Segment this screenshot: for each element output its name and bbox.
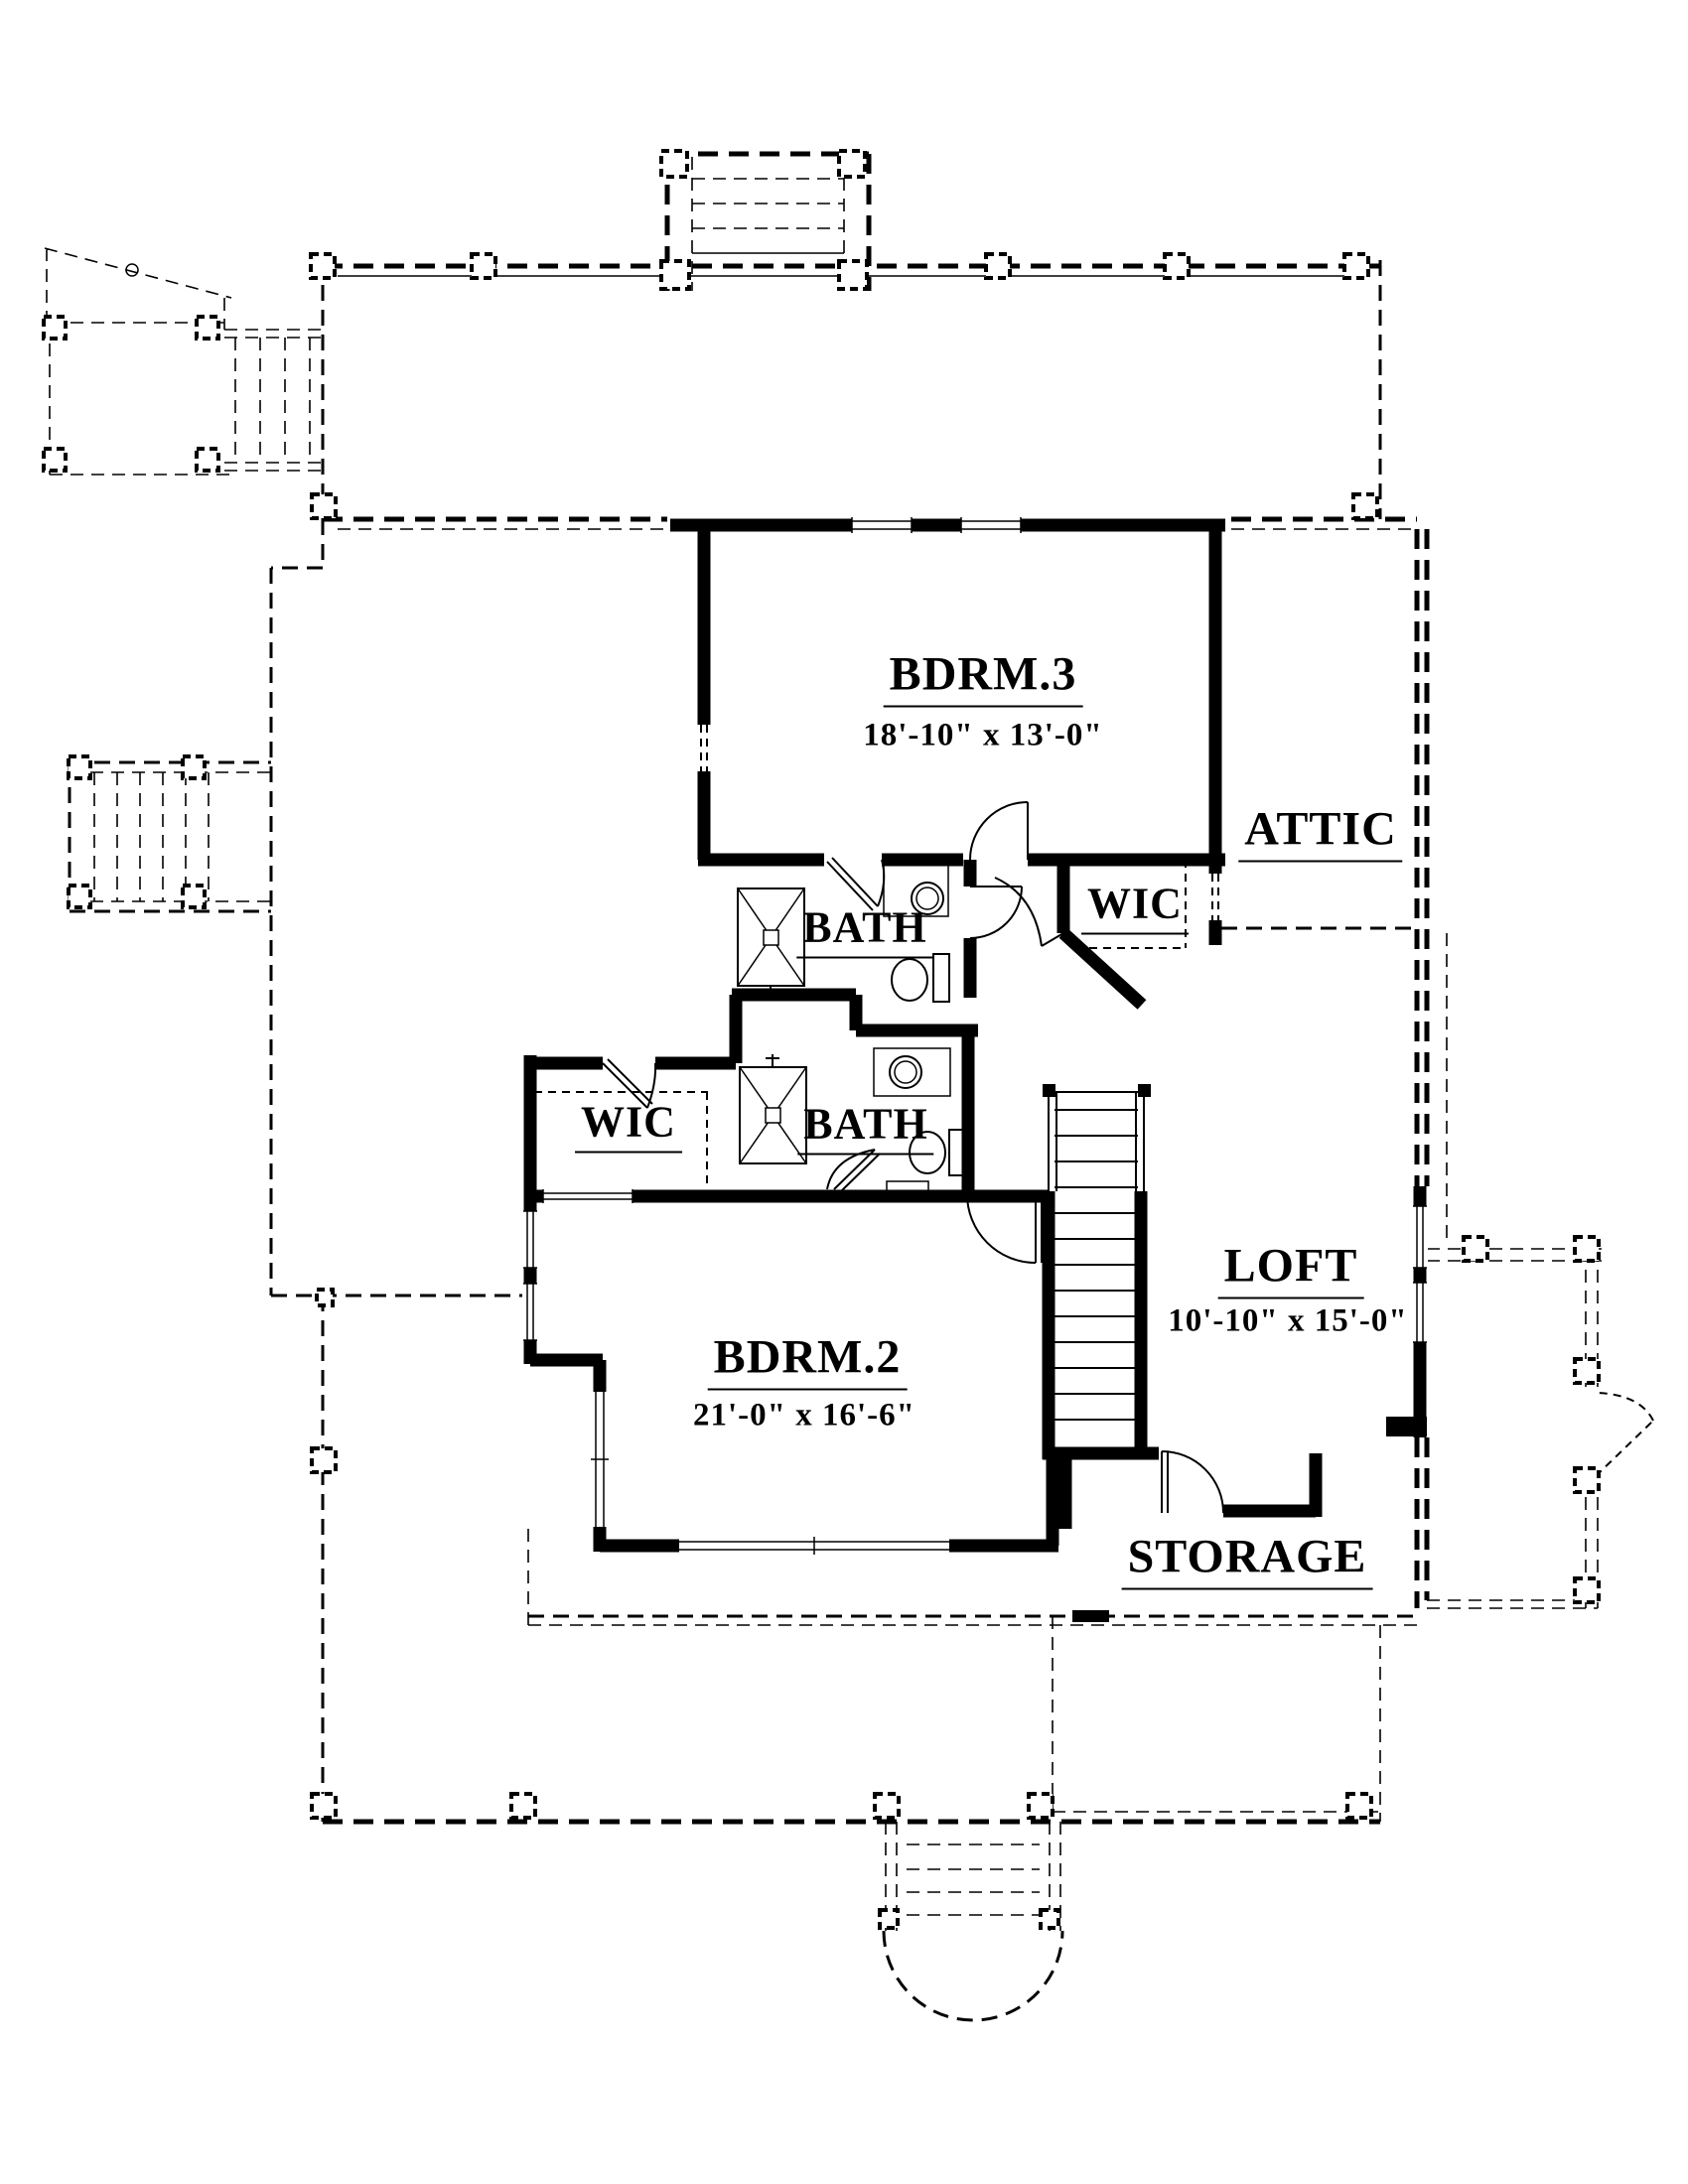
room-label-storage: STORAGE bbox=[1122, 1534, 1373, 1590]
room-name: WIC bbox=[1081, 883, 1189, 935]
top-stair bbox=[661, 151, 869, 291]
floor-plan-page: BDRM.3 18'-10" x 13'-0" ATTIC WIC BATH W… bbox=[0, 0, 1688, 2184]
room-dims-bdrm3: 18'-10" x 13'-0" bbox=[863, 718, 1102, 754]
floor-plan-drawing bbox=[0, 0, 1688, 2184]
room-dims-loft: 10'-10" x 15'-0" bbox=[1168, 1303, 1407, 1340]
bottom-stair bbox=[880, 1822, 1062, 2020]
room-name: STORAGE bbox=[1122, 1534, 1373, 1590]
room-label-bdrm3: BDRM.3 bbox=[884, 651, 1083, 708]
room-name: ATTIC bbox=[1238, 806, 1402, 863]
room-name: BDRM.3 bbox=[884, 651, 1083, 708]
room-name: BATH bbox=[796, 906, 932, 959]
room-label-bath-lower: BATH bbox=[797, 1103, 933, 1156]
room-label-bdrm2: BDRM.2 bbox=[708, 1334, 908, 1391]
upper-deck-outline bbox=[323, 260, 1417, 529]
room-label-wic-lower: WIC bbox=[575, 1101, 682, 1154]
room-label-attic: ATTIC bbox=[1238, 806, 1402, 863]
room-name: BATH bbox=[797, 1103, 933, 1156]
attic-outline bbox=[1221, 529, 1447, 1246]
room-name: LOFT bbox=[1218, 1243, 1364, 1299]
top-left-stair bbox=[44, 248, 321, 475]
room-dims-bdrm2: 21'-0" x 16'-6" bbox=[693, 1398, 915, 1434]
left-porch-outline bbox=[271, 519, 524, 1822]
room-name: BDRM.2 bbox=[708, 1334, 908, 1391]
room-label-bath-upper: BATH bbox=[796, 906, 932, 959]
left-stair bbox=[69, 756, 271, 911]
room-name: WIC bbox=[575, 1101, 682, 1154]
room-label-wic-upper: WIC bbox=[1081, 883, 1189, 935]
right-porch-outline bbox=[1417, 1237, 1653, 1608]
room-label-loft: LOFT bbox=[1218, 1243, 1364, 1299]
